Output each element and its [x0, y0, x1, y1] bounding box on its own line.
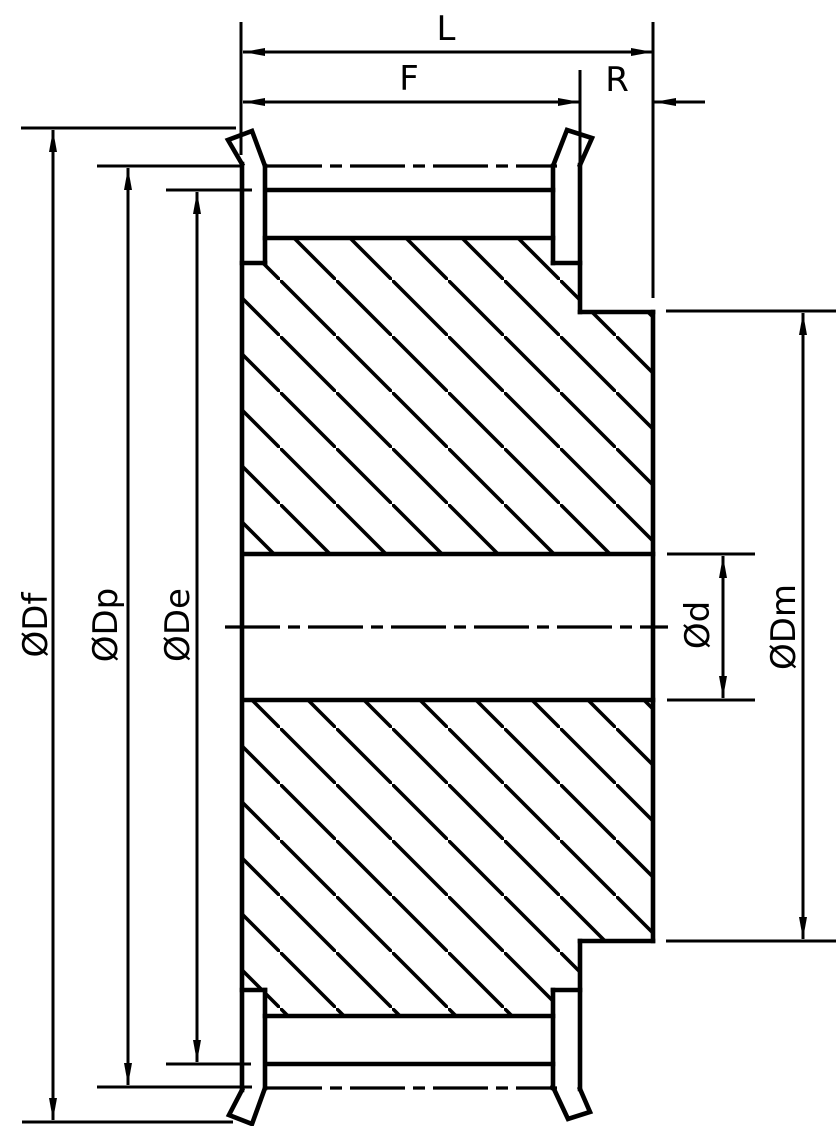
hatch-area-lower — [243, 700, 653, 1016]
label-hub-projection: R — [605, 60, 629, 100]
label-face-width: F — [399, 59, 419, 99]
flange-tl-tip — [228, 131, 265, 166]
hatch-area-upper — [243, 238, 653, 554]
label-flange-diameter: ØDf — [16, 592, 56, 658]
flange-bl-tip — [229, 1088, 265, 1124]
label-pitch-diameter: ØDp — [86, 588, 126, 663]
label-overall-width: L — [437, 9, 456, 49]
label-bore-diameter: Ød — [678, 601, 718, 649]
flange-br-tip — [553, 1087, 590, 1119]
label-outside-diameter: ØDe — [158, 588, 198, 662]
flange-tr-tip — [553, 130, 592, 166]
pulley-cross-section-drawing: L F R ØDf ØDp ØDe Ød ØDm — [0, 0, 837, 1126]
pulley-drawing-page: L F R ØDf ØDp ØDe Ød ØDm — [0, 0, 837, 1126]
label-hub-diameter: ØDm — [764, 584, 804, 670]
